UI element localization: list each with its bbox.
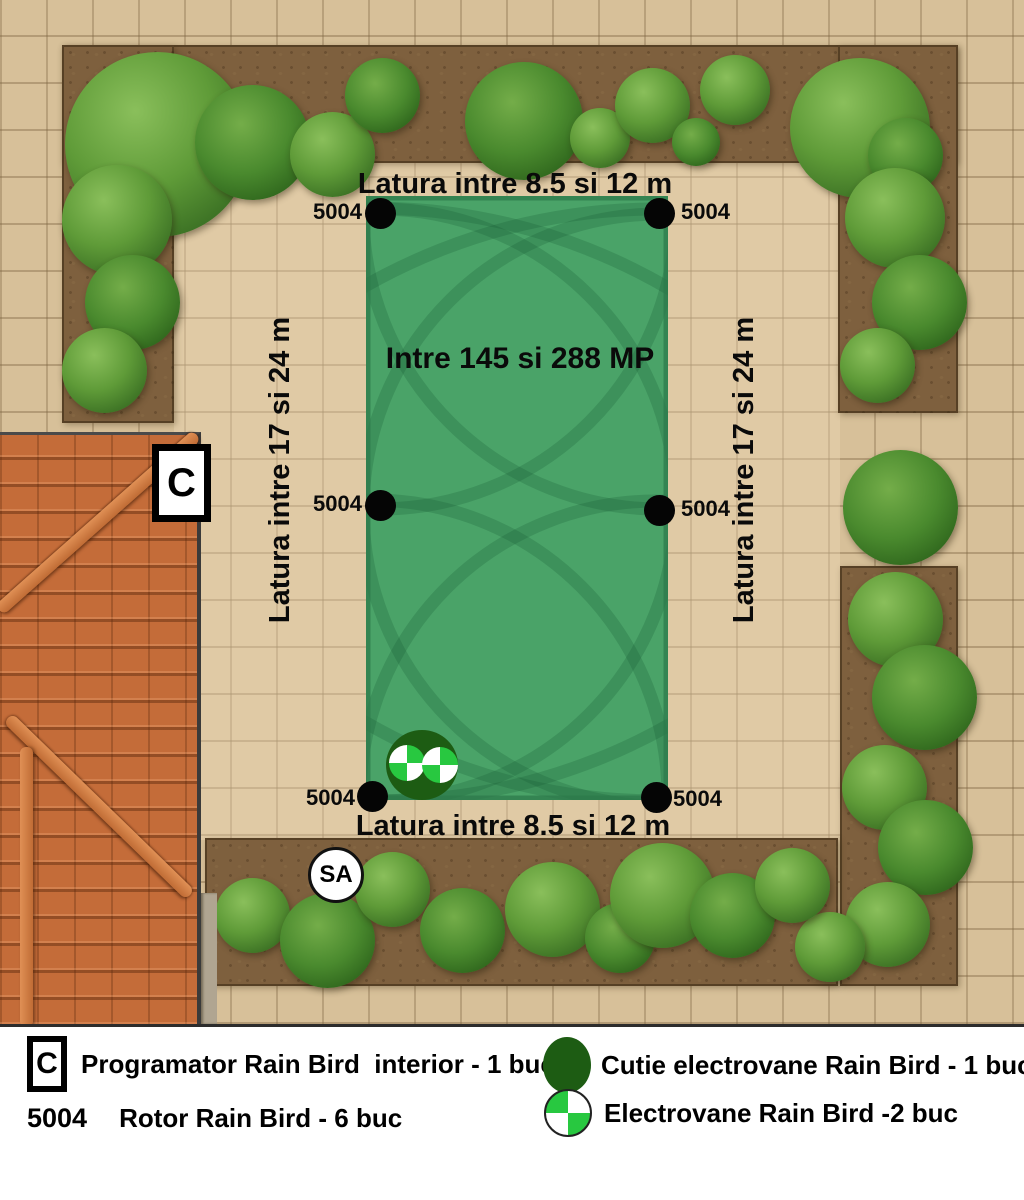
bush xyxy=(420,888,505,973)
bush xyxy=(845,168,945,268)
bush xyxy=(215,878,290,953)
irrigation-plan-page: 5004 5004 5004 5004 5004 5004 Latura int… xyxy=(0,0,1024,1200)
valve-box-icon xyxy=(543,1037,591,1093)
rotor-marker-top-right xyxy=(644,198,675,229)
roof-ridge-vertical xyxy=(20,747,33,1027)
bush xyxy=(355,852,430,927)
controller-box-icon: C xyxy=(27,1036,67,1092)
bush xyxy=(840,328,915,403)
rotor-label: 5004 xyxy=(681,199,741,225)
rotor-marker-mid-left xyxy=(365,490,396,521)
legend-label: Electrovane Rain Bird -2 buc xyxy=(604,1098,958,1129)
bush xyxy=(795,912,865,982)
round-bush-right xyxy=(843,450,958,565)
rotor-label: 5004 xyxy=(673,786,733,812)
legend-item-programator: C Programator Rain Bird interior - 1 buc xyxy=(27,1036,555,1092)
rotor-marker-mid-right xyxy=(644,495,675,526)
controller-marker: C xyxy=(152,444,211,522)
bush xyxy=(345,58,420,133)
bush xyxy=(672,118,720,166)
aerial-plan: 5004 5004 5004 5004 5004 5004 Latura int… xyxy=(0,0,1024,1027)
bush xyxy=(700,55,770,125)
rotor-code: 5004 xyxy=(27,1103,87,1134)
valve-box-marker xyxy=(386,730,458,800)
rotor-label: 5004 xyxy=(295,785,355,811)
legend-item-electrovalve: Electrovane Rain Bird -2 buc xyxy=(544,1089,958,1137)
rotor-label: 5004 xyxy=(302,491,362,517)
electrovalve-icon xyxy=(389,745,425,781)
bush xyxy=(62,328,147,413)
right-side-dimension-label: Latura intre 17 si 24 m xyxy=(728,290,768,650)
tree-top-center xyxy=(465,62,583,180)
house-wall xyxy=(201,893,217,1024)
sa-marker: SA xyxy=(308,847,364,903)
rotor-marker-bottom-right xyxy=(641,782,672,813)
rotor-marker-bottom-left xyxy=(357,781,388,812)
legend-label: Cutie electrovane Rain Bird - 1 buc xyxy=(601,1050,1024,1081)
legend-item-valve-box: Cutie electrovane Rain Bird - 1 buc xyxy=(543,1037,1024,1093)
rotor-label: 5004 xyxy=(302,199,362,225)
top-side-dimension-label: Latura intre 8.5 si 12 m xyxy=(280,168,750,201)
bush xyxy=(755,848,830,923)
lawn-irrigation-area xyxy=(366,196,668,800)
area-label: Intre 145 si 288 MP xyxy=(340,342,700,376)
bottom-side-dimension-label: Latura intre 8.5 si 12 m xyxy=(278,810,748,843)
bush xyxy=(872,645,977,750)
legend-label: Rotor Rain Bird - 6 buc xyxy=(119,1103,402,1134)
electrovalve-icon xyxy=(422,747,458,783)
bush xyxy=(878,800,973,895)
rotor-marker-top-left xyxy=(365,198,396,229)
legend-item-rotor: 5004 Rotor Rain Bird - 6 buc xyxy=(27,1103,402,1134)
left-side-dimension-label: Latura intre 17 si 24 m xyxy=(264,290,304,650)
legend-label: Programator Rain Bird interior - 1 buc xyxy=(81,1049,555,1080)
valve-icon xyxy=(544,1089,592,1137)
legend: C Programator Rain Bird interior - 1 buc… xyxy=(0,1027,1024,1200)
